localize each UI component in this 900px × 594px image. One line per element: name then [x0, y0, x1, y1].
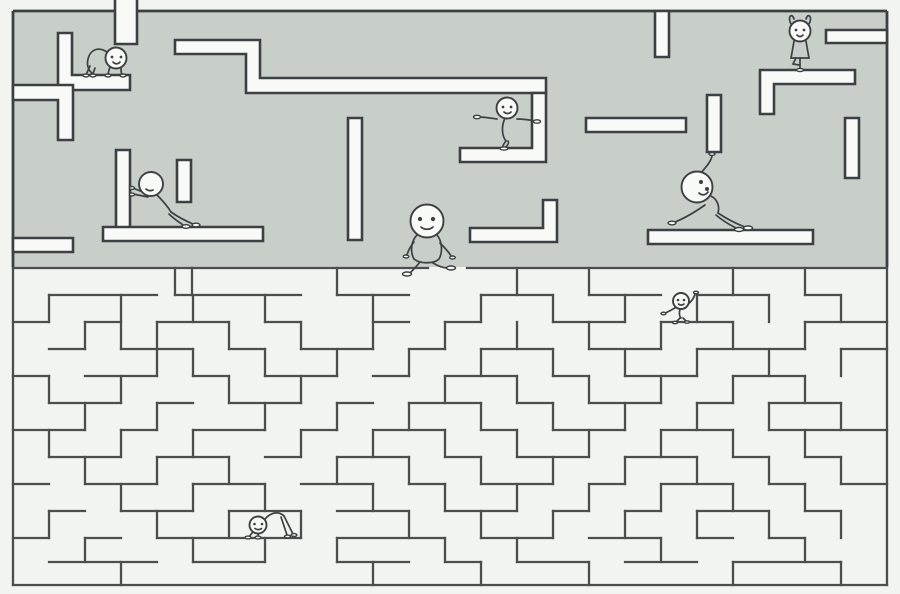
wall-bar-top-right-stub — [655, 11, 669, 57]
wall-bar-right-mid-bar — [845, 118, 859, 178]
maze-canvas — [0, 0, 900, 594]
wall-bar-low-left-band — [13, 238, 73, 252]
wall-bar-stretcher-ground — [648, 230, 813, 244]
wall-bar-mid-right-band — [586, 118, 686, 132]
wall-bar-pusher-wall — [116, 150, 130, 235]
wall-bar-center-vertical-bar — [348, 118, 362, 240]
wall-bar-stretcher-bar — [707, 95, 721, 152]
wall-bar-top-right-band — [826, 30, 887, 43]
wall-bar-pusher-ground — [103, 227, 263, 241]
wall-bar-entrance-notch — [115, 0, 137, 44]
maze-illustration — [0, 0, 900, 594]
wall-bar-stub-right-of-pusher — [177, 160, 191, 202]
